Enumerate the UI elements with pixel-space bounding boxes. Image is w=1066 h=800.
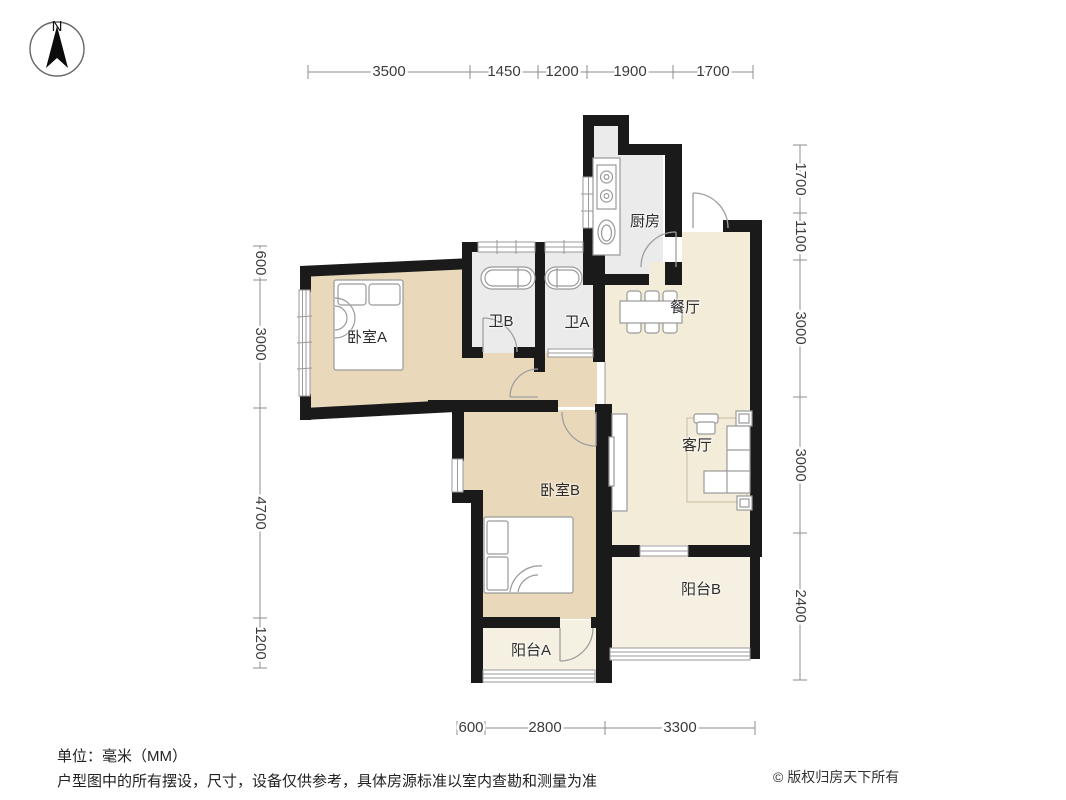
wall: [535, 242, 545, 358]
dim-label: 3000: [792, 448, 809, 481]
wall: [514, 347, 544, 358]
wall: [452, 404, 464, 461]
dim-bottom: 600 2800 3300: [457, 719, 755, 736]
room-label-balcony-a: 阳台A: [511, 642, 551, 659]
window: [478, 240, 535, 254]
wall: [665, 262, 682, 285]
dim-top: 3500 1450 1200 1900 1700: [308, 63, 753, 80]
wall: [688, 545, 752, 557]
room-label-kitchen: 厨房: [630, 213, 660, 230]
window: [610, 648, 750, 660]
wall: [591, 617, 602, 628]
dim-label: 1450: [487, 63, 520, 80]
floor-plan-page: N: [0, 0, 1066, 800]
compass-label: N: [52, 18, 63, 35]
dim-label: 3300: [663, 719, 696, 736]
dim-label: 3000: [252, 327, 269, 360]
room-label-bath-a: 卫A: [564, 314, 589, 331]
wall: [300, 394, 311, 420]
window: [483, 670, 595, 682]
wall: [583, 115, 594, 179]
wall: [665, 144, 682, 237]
dim-label: 4700: [252, 496, 269, 529]
door-threshold: [548, 349, 593, 357]
dim-label: 1200: [545, 63, 578, 80]
side-table: [737, 496, 752, 510]
wall: [750, 545, 760, 659]
wall: [593, 242, 605, 362]
dim-label: 600: [252, 250, 269, 275]
bathtub-a: [545, 267, 582, 289]
dining-chair: [663, 322, 677, 333]
window: [297, 290, 312, 396]
dining-chair: [645, 322, 659, 333]
dim-label: 2400: [792, 589, 809, 622]
dim-label: 1700: [696, 63, 729, 80]
footer-copyright: © 版权归房天下所有: [773, 769, 899, 785]
side-table: [736, 411, 752, 426]
window: [452, 459, 463, 492]
armchair: [694, 414, 718, 434]
room-label-living: 客厅: [682, 437, 712, 454]
dim-label: 3000: [792, 311, 809, 344]
room-label-bath-b: 卫B: [488, 313, 513, 330]
floor-bath-b: [472, 247, 535, 353]
wall: [583, 228, 594, 276]
stove: [597, 165, 616, 209]
kitchen-counter: [593, 158, 620, 255]
dim-label: 1900: [613, 63, 646, 80]
wall: [483, 617, 560, 628]
dining-chair: [627, 322, 641, 333]
dim-label: 1700: [792, 162, 809, 195]
wall: [583, 274, 649, 285]
bed-b: [484, 517, 573, 593]
wall: [471, 499, 483, 621]
dim-label: 600: [458, 719, 483, 736]
dim-right: 1700 1100 3000 3000 2400: [792, 145, 809, 680]
north-compass: N: [30, 18, 84, 76]
pillow: [338, 284, 366, 305]
wall: [595, 404, 612, 414]
tv-cabinet: [609, 414, 627, 511]
pillow: [487, 557, 508, 590]
window: [545, 240, 583, 254]
floor-plan-svg: N: [0, 0, 1066, 800]
wall: [300, 266, 311, 292]
bathtub-b: [481, 267, 535, 289]
footer: 单位：毫米（MM） 户型图中的所有摆设，尺寸，设备仅供参考，具体房源标准以室内查…: [57, 747, 899, 790]
dim-label: 1100: [792, 220, 809, 252]
dining-chair: [627, 291, 641, 302]
wall: [462, 347, 483, 358]
room-label-dining: 餐厅: [670, 299, 700, 316]
tv: [609, 437, 614, 486]
entry-door: [693, 193, 728, 228]
sliding-door: [640, 546, 688, 556]
wall: [471, 617, 483, 683]
dim-label: 3500: [372, 63, 405, 80]
room-label-bedroom-b: 卧室B: [540, 482, 580, 499]
dim-label: 2800: [528, 719, 561, 736]
dim-label: 1200: [252, 626, 269, 659]
dim-left: 600 3000 4700 1200: [252, 246, 269, 668]
room-label-balcony-b: 阳台B: [681, 581, 721, 598]
room-label-bedroom-a: 卧室A: [347, 329, 387, 346]
footer-disclaimer: 户型图中的所有摆设，尺寸，设备仅供参考，具体房源标准以室内查勘和测量为准: [57, 773, 597, 790]
bed-a: [334, 280, 403, 370]
wall: [534, 358, 545, 372]
footer-unit: 单位：毫米（MM）: [57, 747, 187, 765]
wall: [612, 545, 640, 557]
wall: [462, 242, 472, 358]
dining-chair: [645, 291, 659, 302]
pillow: [369, 284, 400, 305]
floor-balcony-b: [612, 552, 750, 656]
pillow: [487, 521, 508, 554]
